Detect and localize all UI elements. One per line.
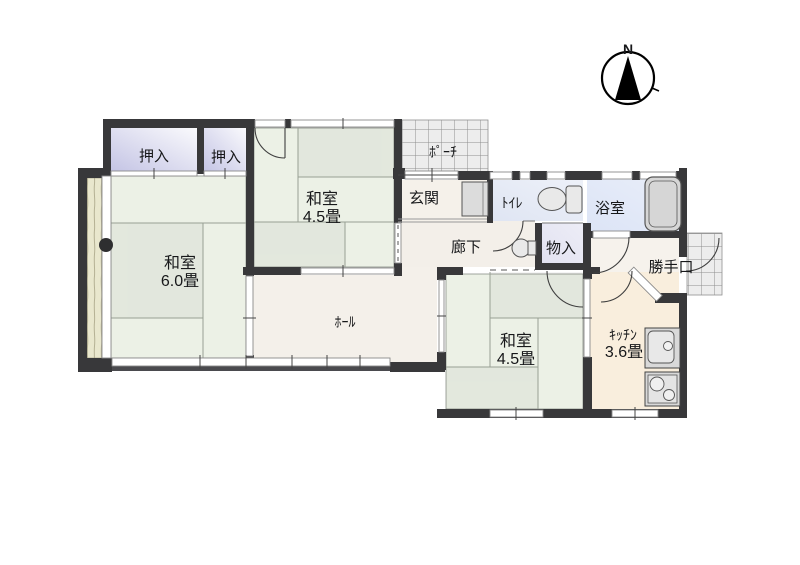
- north-compass-icon: N: [602, 41, 659, 104]
- room-label-oshiire-left: 押入: [139, 148, 169, 165]
- room-label-kitchen: ｷｯﾁﾝ: [609, 327, 637, 343]
- room-size-washitsu-left: 6.0畳: [161, 273, 199, 290]
- slider-washitsu-left-hall: [246, 276, 253, 356]
- room-label-rouka: 廊下: [451, 239, 481, 256]
- room-label-oshiire-right: 押入: [211, 149, 241, 166]
- room-size-washitsu-bottom: 4.5畳: [497, 351, 535, 368]
- post-dot: [99, 238, 113, 252]
- room-size-washitsu-top: 4.5畳: [303, 209, 341, 226]
- room-label-hall: ﾎｰﾙ: [335, 314, 356, 330]
- shoe-cabinet: [462, 182, 488, 216]
- toilet-icon: [538, 186, 582, 213]
- washbasin-icon: [512, 239, 536, 257]
- window-bath-1: [602, 172, 632, 179]
- kitchen-sink-icon: [645, 328, 680, 368]
- veranda-strip: [87, 178, 102, 358]
- bath-door-opening: [593, 231, 630, 238]
- room-label-bath: 浴室: [595, 200, 625, 217]
- room-size-kitchen: 3.6畳: [605, 344, 643, 361]
- slider-washitsu-top-hall: [301, 268, 394, 274]
- room-label-mono-ire: 物入: [546, 240, 576, 257]
- window-toilet-1: [490, 172, 512, 179]
- bathtub-icon: [645, 177, 681, 231]
- window-toilet-3: [547, 172, 565, 179]
- room-label-washitsu-bottom: 和室: [500, 332, 532, 350]
- floor-plan-page: N 押入 押入 和室 4.5畳 和室 6.0畳 和室 4.5畳 玄関 ﾎﾟｰﾁ …: [0, 0, 800, 565]
- room-label-toilet: ﾄｲﾚ: [502, 195, 523, 211]
- compass-label: N: [623, 41, 633, 57]
- room-label-genkan: 玄関: [409, 190, 439, 207]
- room-label-katteguchi: 勝手口: [648, 259, 693, 276]
- window-south-sliding: [112, 358, 390, 366]
- kitchen-counter: [645, 328, 680, 406]
- room-label-washitsu-top: 和室: [306, 190, 338, 208]
- stove-icon: [645, 372, 680, 406]
- floor-plan: N 押入 押入 和室 4.5畳 和室 6.0畳 和室 4.5畳 玄関 ﾎﾟｰﾁ …: [0, 0, 800, 565]
- window-toilet-2: [520, 172, 530, 179]
- room-label-washitsu-left: 和室: [164, 254, 196, 272]
- shoji-veranda: [102, 176, 111, 358]
- room-label-porch: ﾎﾟｰﾁ: [429, 144, 457, 160]
- door-opening-washitsu-top: [255, 120, 285, 127]
